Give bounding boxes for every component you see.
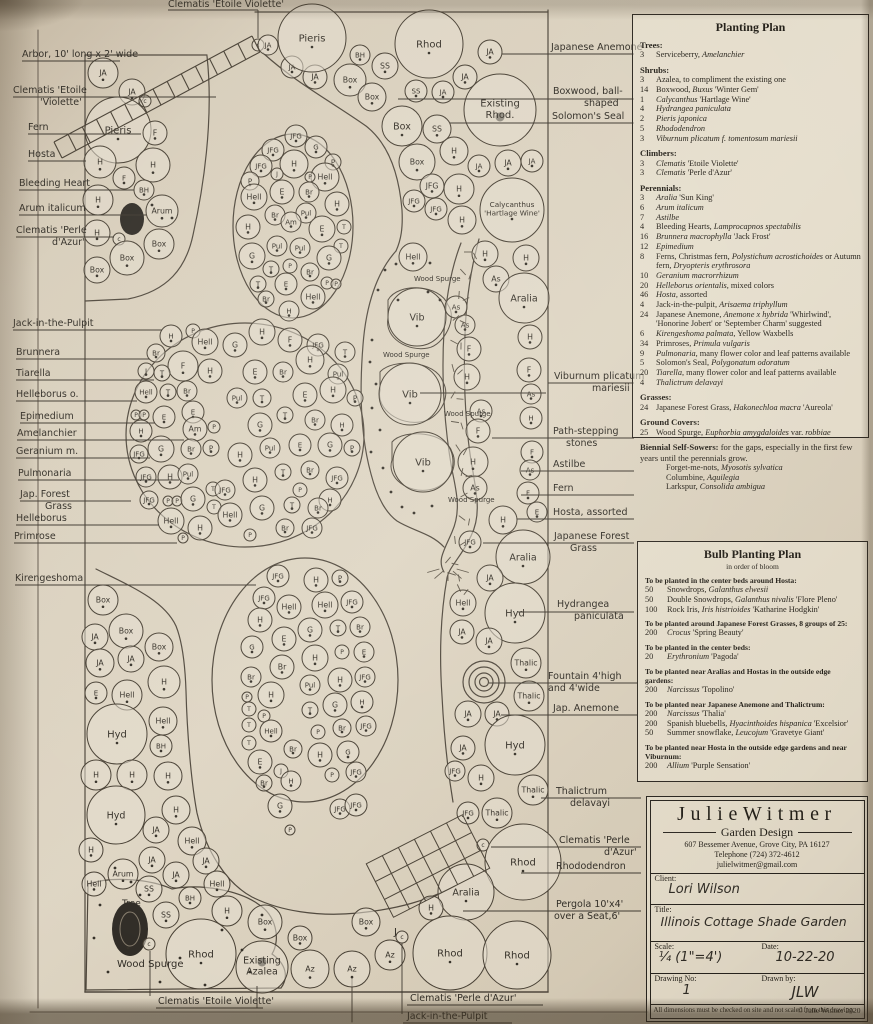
plant-circle: H (458, 447, 488, 477)
plant-circle: H (351, 691, 373, 713)
plant-circle-label: T (246, 740, 251, 747)
plant-circle: Am (183, 417, 207, 441)
plan-item-text: Japanese Forest Grass, Hakonechloa macra… (656, 403, 861, 413)
plan-item: 25Wood Spurge, Euphorbia amygdaloides va… (640, 428, 861, 438)
plant-circle: JFG (136, 467, 156, 487)
annotation-text: Hosta (28, 149, 55, 160)
plant-circle-label: G (249, 643, 254, 651)
plant-circle: F (466, 419, 490, 443)
plant-circle-label: JA (90, 633, 99, 642)
plan-item-qty: 4 (640, 222, 656, 232)
plant-circle-label: E (282, 635, 287, 644)
bulb-plan-title: Bulb Planting Plan (645, 547, 860, 562)
plant-circle: F (143, 121, 167, 145)
plant-circle: JA (163, 862, 189, 888)
plant-circle: T (242, 718, 256, 732)
plant-circle: H (468, 765, 494, 791)
plant-circle-label: JFG (425, 182, 439, 191)
plant-circle-label: H (197, 524, 203, 533)
plant-circle-label: H (165, 772, 171, 781)
plant-circle-label: G (332, 701, 338, 710)
plant-circle: Br (276, 519, 294, 537)
plant-circle-label: JA (98, 69, 107, 78)
plant-circle-label: SS (380, 62, 390, 71)
annotation-text: 'Violette' (40, 97, 82, 108)
plant-circle-label: H (88, 846, 94, 855)
plan-section: Grasses:24Japanese Forest Grass, Hakonec… (640, 392, 861, 412)
plant-circle-label: JFG (429, 205, 442, 213)
plan-item-text: Jack-in-the-pulpit, Arisaema triphyllum (656, 300, 861, 310)
plan-item-qty: 3 (640, 50, 656, 60)
plant-circle: Box (352, 908, 380, 936)
plant-circle: Rhod (483, 921, 551, 989)
plant-circle: Hell (192, 329, 218, 355)
plant-circle: Hell (135, 381, 157, 403)
plan-item-text: Hydrangea paniculata (656, 104, 861, 114)
plant-circle: JA (88, 58, 118, 88)
plant-circle-label: H (528, 414, 533, 422)
drawing-row: Drawing No: 1 Drawn by: JLW (651, 973, 864, 1004)
plan-item-text: Kirengeshoma palmata, Yellow Waxbells (656, 329, 861, 339)
plan-item-text: Thalictrum delavayi (656, 378, 861, 388)
plant-circle: H (162, 796, 190, 824)
plan-item: 10Geranium macrorrhizum (640, 271, 861, 281)
plan-item-text: Tiarella, many flower color and leaf pat… (656, 368, 861, 378)
plan-section: Climbers:3Clematis 'Etoile Violette'3Cle… (640, 148, 861, 178)
plant-circle: Br (299, 182, 319, 202)
plant-circle: T (335, 342, 355, 362)
plan-note: Wood Spurge (414, 275, 461, 283)
plant-circle-label: JA (95, 659, 104, 668)
plan-item-qty: 20 (640, 281, 656, 291)
plant-circle: Br (241, 667, 261, 687)
annotation-text: Helleborus o. (16, 389, 79, 400)
plant-circle-label: JA (147, 856, 156, 865)
plant-circle: P (335, 645, 349, 659)
plan-item-qty: 3 (640, 134, 656, 144)
plant-circle: Rhod (413, 916, 487, 990)
scale-date-row: Scale: ¼ (1"=4') Date: 10-22-20 (651, 941, 864, 973)
plant-circle: JA (432, 81, 454, 103)
plant-circle: P (325, 768, 339, 782)
plant-circle: T (154, 365, 170, 381)
annotation-text: Clematis 'Etoile (13, 85, 87, 96)
plant-circle-label: JA (126, 655, 135, 664)
plant-circle: Hell (241, 184, 267, 210)
plan-item-text: Wood Spurge, Euphorbia amygdaloides var.… (656, 428, 861, 438)
bulb-item-text: Spanish bluebells, Hyacinthoides hispani… (667, 719, 860, 729)
plant-circle: H (81, 760, 111, 790)
plant-circle-label: JA (458, 744, 467, 753)
plant-circle-label: H (313, 576, 319, 585)
plan-item-text: Solomon's Seal, Polygonatum odoratum (656, 358, 861, 368)
plan-item: 3Clematis 'Etoile Violette' (640, 159, 861, 169)
plant-circle-label: P (330, 772, 334, 779)
plan-item: 4Thalictrum delavayi (640, 378, 861, 388)
plant-circle-label: Box (119, 627, 134, 636)
plant-circle-label: F (153, 129, 158, 138)
plant-circle-label: Hell (120, 691, 135, 700)
plant-circle: H (236, 215, 260, 239)
designer-email: julielwitmer@gmail.com (653, 860, 862, 870)
plan-item: 24Japanese Anemone, Anemone x hybrida 'W… (640, 310, 861, 329)
plant-circle-label: Hell (223, 511, 238, 520)
plant-circle-label: H (307, 356, 313, 365)
plant-circle-label: Box (410, 158, 425, 167)
plan-item-text: Serviceberry, Amelanchier (656, 50, 861, 60)
bulb-item-text: Double Snowdrops, Galanthus nivalis 'Flo… (667, 595, 860, 605)
annotation-text: Fountain 4'high (548, 671, 622, 682)
drawn-by-cell: Drawn by: JLW (757, 974, 864, 1004)
plant-circle: P (285, 825, 295, 835)
plant-circle-label: JFG (333, 805, 346, 813)
plan-item-qty: 3 (640, 75, 656, 85)
plant-circle: T (275, 464, 291, 480)
plant-circle-label: H (456, 185, 462, 194)
plan-item: 8Ferns, Christmas fern, Polystichum acro… (640, 252, 861, 271)
plant-circle-label: Box (258, 918, 273, 927)
plan-item: Forget-me-nots, Myosotis sylvatica (666, 463, 861, 473)
plant-circle-label: H (359, 698, 364, 706)
plant-circle-label: H (237, 451, 243, 460)
plant-circle: Thalic (482, 798, 512, 828)
annotation-text: over a Seat,6' (554, 911, 620, 922)
plan-item-qty: 24 (640, 310, 656, 329)
plant-circle-label: E (298, 441, 302, 449)
bulb-group: To be planted around Japanese Forest Gra… (645, 619, 860, 638)
plant-circle: JA (139, 847, 165, 873)
plan-item-qty: 4 (640, 104, 656, 114)
plant-circle-label: Hell (198, 338, 213, 347)
plant-circle: H (243, 468, 267, 492)
bulb-item-text: Crocus 'Spring Beauty' (667, 628, 860, 638)
annotation-text: Rhododendron (556, 861, 626, 872)
plant-circle: H (280, 150, 308, 178)
bulb-item: 200Allium 'Purple Sensation' (645, 761, 860, 771)
scale-cell: Scale: ¼ (1"=4') (651, 942, 757, 973)
annotation-text: Viburnum plicatum (554, 371, 644, 382)
plant-circle-label: Hyd (107, 730, 127, 741)
plant-circle-label: JA (485, 48, 494, 57)
annotation-text: shaped (584, 98, 619, 109)
plant-circle: Hell (260, 720, 282, 742)
plant-circle: G (323, 693, 347, 717)
plant-circle: P (305, 172, 315, 182)
plant-circle-label: Vib (410, 312, 425, 323)
plan-item: 16Brunnera macrophylla 'Jack Frost' (640, 232, 861, 242)
plan-section-heading: Biennial Self-Sowers: for the gaps, espe… (640, 442, 861, 463)
plant-circle: T (263, 261, 279, 277)
plan-item-qty: 12 (640, 242, 656, 252)
plant-circle: P (178, 533, 188, 543)
plant-circle-label: JFG (257, 594, 270, 602)
plan-item-text: Epimedium (656, 242, 861, 252)
plant-circle: G (181, 487, 205, 511)
plan-item: 7Astilbe (640, 213, 861, 223)
plant-circle-label: c (143, 98, 146, 105)
annotation-label: Path-steppingstones (492, 426, 634, 449)
plant-circle-label: E (320, 225, 325, 234)
plant-circle-label: H (478, 774, 484, 783)
plant-circle-label: F (527, 366, 532, 375)
plan-item-text: Arum italicum (656, 203, 861, 213)
plant-circle: J (271, 168, 283, 180)
plant-circle-label: P (181, 535, 185, 542)
title-block-inner: JulieWitmer Garden Design 607 Bessemer A… (650, 800, 865, 1019)
annotation-text: stones (566, 438, 597, 449)
plant-circle-label: H (451, 147, 457, 156)
plant-circle: G (318, 433, 342, 457)
plant-circle-label: Existing (480, 99, 520, 110)
plan-item-text: Brunnera macrophylla 'Jack Frost' (656, 232, 861, 242)
plant-circle: Br (350, 617, 370, 637)
plant-circle: Az (291, 950, 329, 988)
plant-circle-label: SS (412, 87, 421, 95)
plant-circle: H (520, 407, 542, 429)
bulb-group: To be planted near Aralias and Hostas in… (645, 667, 860, 695)
plant-circle: JA (143, 817, 169, 843)
plant-circle: E (270, 180, 294, 204)
plan-item-text: Ferns, Christmas fern, Polystichum acros… (656, 252, 861, 271)
plant-circle: H (419, 896, 443, 920)
plant-circle-label: H (337, 676, 343, 685)
plant-circle-label: H (459, 216, 465, 225)
plan-item: 3Clematis 'Perle d'Azur' (640, 168, 861, 178)
plant-circle-label: Hell (406, 253, 421, 262)
plant-circle: Box (88, 585, 118, 615)
plant-circle-label: P (134, 412, 138, 419)
plant-circle-label: H (523, 254, 529, 263)
annotation-label: Helleborus (16, 513, 159, 525)
plant-circle-label: G (257, 421, 263, 430)
plant-circle-label: Hell (264, 727, 278, 735)
plan-item-qty: 16 (640, 232, 656, 242)
plant-circle: P (244, 529, 256, 541)
plant-circle: Br (181, 439, 201, 459)
plant-circle: As (520, 460, 540, 480)
plant-circle-label: H (317, 751, 323, 760)
plant-circle-label: Box (293, 934, 308, 943)
plant-circle: Br (308, 498, 328, 518)
plant-circle-label: As (452, 303, 461, 311)
plant-circle: Box (358, 83, 386, 111)
plant-circle: Box (382, 106, 422, 146)
plan-item-qty: 6 (640, 203, 656, 213)
planting-plan-body: Trees:3Serviceberry, AmelanchierShrubs:3… (640, 40, 861, 492)
plant-circle: Pul (300, 675, 320, 695)
title-block-header: JulieWitmer Garden Design 607 Bessemer A… (651, 801, 864, 873)
plan-item: 20Tiarella, many flower color and leaf p… (640, 368, 861, 378)
plant-circle-label: 'Hartlage Wine' (484, 209, 540, 218)
plan-item-text: Rhododendron (656, 124, 861, 134)
plant-circle-label: JA (201, 857, 210, 866)
plan-item: 3Serviceberry, Amelanchier (640, 50, 861, 60)
plant-circle-label: H (268, 691, 274, 700)
plant-circle-label: P (166, 498, 170, 505)
plan-item: 6Arum italicum (640, 203, 861, 213)
plant-circle-label: P (325, 280, 329, 287)
plant-circle-label: Vib (402, 390, 418, 401)
plant-circle-label: J (279, 768, 282, 775)
plant-circle: ExistingRhod. (464, 74, 536, 146)
annotation-label: Clematis 'Etoile Violette' (168, 0, 284, 38)
plant-circle: H (281, 771, 301, 791)
plant-circle: T (337, 220, 351, 234)
plant-circle-label: JFG (349, 801, 362, 809)
plant-circle: H (160, 325, 182, 347)
plant-circle: H (279, 301, 299, 321)
plant-circle-label: JFG (289, 132, 302, 140)
annotation-text: Tiarella (15, 368, 51, 379)
plant-circle: Pul (290, 238, 310, 258)
plant-circle-label: F (181, 362, 186, 371)
plant-circle: JFG (253, 587, 275, 609)
plant-circle-label: Hell (318, 601, 333, 610)
plan-item-qty: 3 (640, 168, 656, 178)
plant-circle: H (331, 414, 353, 436)
plant-circle-label: JFG (254, 162, 267, 170)
plant-circle-label: Thalic (484, 809, 508, 818)
plant-circle-label: H (129, 771, 135, 780)
plant-circle-label: JA (127, 88, 136, 97)
plant-circle: H (117, 760, 147, 790)
plant-circle: G (317, 246, 341, 270)
plant-circle-label: Box (359, 918, 374, 927)
plant-circle-label: P (262, 713, 266, 720)
plant-circle: P (311, 725, 325, 739)
plan-item-qty: 3 (640, 193, 656, 203)
plant-circle-label: Thalic (513, 659, 537, 668)
plant-circle: Hell (301, 285, 325, 309)
plan-item-qty: 34 (640, 339, 656, 349)
plant-circle: E (153, 406, 175, 428)
annotation-text: Bleeding Heart (19, 178, 90, 189)
plant-circle-label: H (252, 476, 258, 485)
plant-circle: JA (468, 155, 490, 177)
plan-item: 2Pieris japonica (640, 114, 861, 124)
plant-circle: G (248, 413, 272, 437)
plant-circle: c (143, 938, 155, 950)
plant-circle-label: T (341, 224, 346, 231)
plant-circle-label: JA (528, 157, 536, 165)
plan-item-qty: 25 (640, 428, 656, 438)
plant-circle: H (440, 137, 468, 165)
plant-circle-label: H (527, 333, 533, 342)
plant-circle-label: JA (310, 73, 319, 82)
plan-item-text: Pulmonaria, many flower color and leaf p… (656, 349, 861, 359)
plant-circle: P (139, 410, 149, 420)
plant-circle-label: JFG (266, 146, 279, 154)
garden-plan-photo: JAJAcPierisFHHFBHHArumHcBoxBoxBoxcJAJAJA… (0, 0, 873, 1024)
plant-circle: JFG (425, 198, 447, 220)
plant-circle-label: H (94, 229, 100, 238)
plant-circle: Br (301, 461, 319, 479)
plan-item-text: Geranium macrorrhizum (656, 271, 861, 281)
annotation-label: Kirengeshoma (15, 573, 256, 585)
plant-circle: Hell (450, 590, 476, 616)
plan-item-text: Primroses, Primula vulgaris (656, 339, 861, 349)
copyright-text: © Julie Witmer 2020 (798, 1006, 861, 1016)
plant-circle: JA (82, 624, 108, 650)
plant-circle-label: E (280, 188, 285, 197)
annotation-label: Primrose (14, 531, 177, 543)
plant-circle: P (331, 279, 341, 289)
annotation-text: Kirengeshoma (15, 573, 83, 584)
designer-name: JulieWitmer (653, 804, 862, 825)
plant-circle: Az (334, 951, 370, 987)
plan-item-qty: 4 (640, 378, 656, 388)
plant-circle-label: Br (278, 663, 287, 672)
annotation-text: Epimedium (20, 411, 74, 422)
plant-circle-label: H (224, 907, 230, 916)
plant-circle-label: Hell (247, 193, 262, 202)
bulb-plan-box: Bulb Planting Plan in order of bloom To … (637, 541, 868, 782)
plant-circle: Calycanthus'Hartlage Wine' (480, 178, 544, 242)
plant-circle: Thalic (511, 648, 541, 678)
plant-circle: Hyd (87, 786, 145, 844)
annotation-label: Fountain 4'highand 4'wide (489, 671, 638, 694)
plant-circle-label: JA (171, 871, 180, 880)
plant-circle-label: Rhod (504, 951, 530, 962)
plant-circle: SS (153, 902, 179, 928)
plan-section-heading: Grasses: (640, 392, 861, 402)
plant-circle: Box (288, 926, 312, 950)
plant-circle-label: Hyd (107, 810, 126, 821)
annotation-text: Clematis 'Etoile Violette' (158, 996, 274, 1007)
plant-circle-label: Rhod. (486, 110, 515, 121)
bulb-group: To be planted in the center beds:20Eryth… (645, 643, 860, 662)
bulb-item-text: Summer snowflake, Leucojum 'Gravetye Gia… (667, 728, 860, 738)
plan-item: 4Bleeding Hearts, Lamprocapnos spectabil… (640, 222, 861, 232)
annotation-text: Clematis 'Perle (16, 225, 87, 236)
plant-circle-label: G (158, 445, 164, 454)
plant-circle: G (250, 496, 274, 520)
plant-circle-label: E (258, 758, 263, 767)
plant-circle-label: Pieris (299, 34, 326, 45)
plant-circle: H (188, 516, 212, 540)
plant-circle: Pieris (278, 4, 346, 72)
designer-phone: Telephone (724) 372-4612 (653, 850, 862, 860)
plant-circle-label: E (284, 280, 288, 288)
plant-circle: H (325, 192, 349, 216)
plant-circle-label: Az (305, 965, 314, 974)
plant-circle: Hell (277, 595, 301, 619)
plan-item: 5Solomon's Seal, Polygonatum odoratum (640, 358, 861, 368)
plant-circle-label: c (481, 842, 484, 849)
annotation-label: Jack-in-the-Pulpit (12, 318, 162, 330)
plant-circle: E (275, 273, 297, 295)
plant-circle: F (168, 351, 198, 381)
plant-circle: JFG (302, 518, 322, 538)
plant-circle-label: Aralia (452, 887, 479, 898)
plan-section: Shrubs:3Azalea, to compliment the existi… (640, 65, 861, 143)
bulb-group-intro: To be planted near Aralias and Hostas in… (645, 667, 860, 685)
plant-circle: G (223, 333, 247, 357)
plan-item-text: Astilbe (656, 213, 861, 223)
plan-item: 46Hosta, assorted (640, 290, 861, 300)
plant-circle-label: Az (385, 951, 394, 960)
plan-item: 1Calycanthus 'Hartlage Wine' (640, 95, 861, 105)
planting-plan-box: Planting Plan Trees:3Serviceberry, Amela… (632, 14, 869, 438)
plant-circle-label: E (94, 689, 98, 697)
plant-circle: Hell (82, 872, 106, 896)
plant-circle: JFG (215, 480, 235, 500)
plant-circle-label: JFG (407, 197, 420, 205)
annotation-text: Clematis 'Perle (559, 835, 630, 846)
plant-circle: Hell (312, 592, 338, 618)
plant-circle: JFG (420, 174, 444, 198)
plant-circle: Vib (388, 288, 446, 346)
